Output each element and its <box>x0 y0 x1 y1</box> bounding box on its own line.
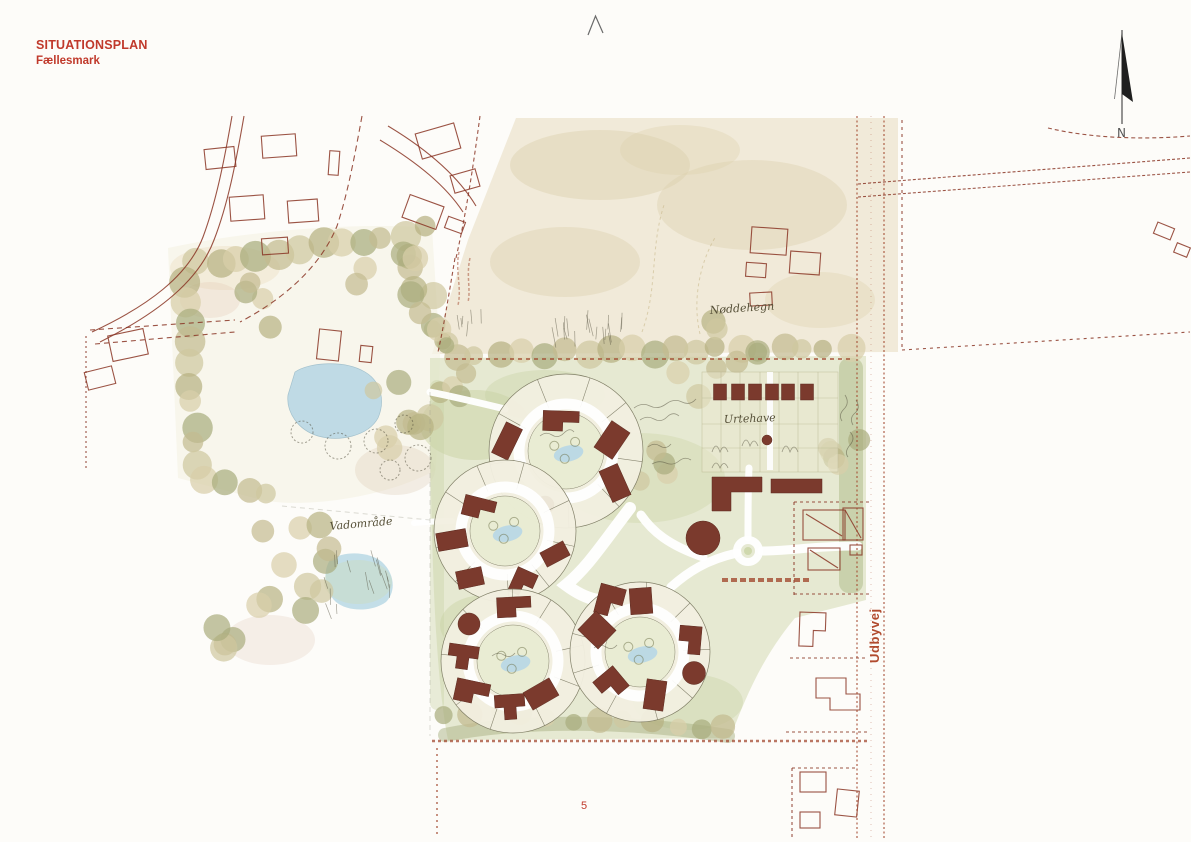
page-number: 5 <box>573 800 595 812</box>
tree <box>666 361 689 384</box>
drawing-sheet: SITUATIONSPLAN Fællesmark <box>0 0 1191 842</box>
field-north <box>432 118 898 354</box>
tree <box>565 714 582 731</box>
field-boundary <box>902 332 1190 350</box>
tree <box>646 441 666 461</box>
tree <box>271 552 297 578</box>
garden-shed <box>732 384 745 400</box>
tree <box>259 316 282 339</box>
tree <box>435 706 453 724</box>
roundabout-island <box>744 547 752 555</box>
tree <box>256 484 276 504</box>
tree <box>684 340 709 365</box>
tree <box>848 429 870 451</box>
existing-building <box>415 123 461 159</box>
tree <box>179 390 201 412</box>
tree <box>317 536 342 561</box>
tree <box>814 340 832 358</box>
tree <box>246 592 272 618</box>
field-texture <box>765 272 875 328</box>
tree <box>203 614 230 641</box>
common-building-bar <box>771 479 822 493</box>
context-road <box>858 158 1190 184</box>
grass-stroke <box>326 603 332 618</box>
tree <box>838 334 866 362</box>
tree <box>292 597 319 624</box>
context-bottomright-buildings <box>800 772 859 828</box>
tree <box>365 382 383 400</box>
north-arrow-edge <box>1115 33 1123 99</box>
tree <box>369 227 391 249</box>
north-arrow: N <box>1115 30 1134 140</box>
tree <box>692 719 712 739</box>
fold-mark-icon <box>588 16 603 35</box>
tree <box>706 318 727 339</box>
tree <box>662 335 688 361</box>
tree <box>212 469 238 495</box>
existing-building <box>1153 222 1174 240</box>
tree <box>745 340 769 364</box>
garden-well <box>762 435 772 445</box>
tree <box>670 719 687 736</box>
existing-building <box>816 678 860 710</box>
tree <box>438 337 454 353</box>
site-plan-svg: Nøddehegn Urtehave Vadområde Udbyvej N <box>0 0 1191 842</box>
label-vadomraade: Vadområde <box>329 515 393 533</box>
housing-cluster-3 <box>441 589 585 733</box>
east-hedge <box>839 358 863 593</box>
tree <box>726 351 748 373</box>
tree <box>377 435 403 461</box>
existing-building <box>444 216 465 233</box>
tree <box>464 346 483 365</box>
garden-shed <box>749 384 762 400</box>
tree <box>251 520 274 543</box>
existing-building <box>800 812 820 828</box>
context-road <box>388 126 476 206</box>
existing-building <box>261 134 296 158</box>
grass-stroke <box>336 604 337 614</box>
context-road <box>858 172 1190 197</box>
label-urtehave: Urtehave <box>724 411 777 426</box>
housing-cluster-2 <box>434 460 576 602</box>
field-texture <box>490 227 640 297</box>
tree <box>711 714 736 739</box>
garden-shed <box>801 384 814 400</box>
existing-building <box>108 329 149 362</box>
house <box>643 679 667 711</box>
common-building-round <box>686 521 720 555</box>
field-texture <box>620 125 740 175</box>
park-pond <box>288 364 382 439</box>
housing-cluster-4 <box>570 582 710 722</box>
garden-shed <box>766 384 779 400</box>
existing-building <box>204 146 236 169</box>
existing-building <box>328 151 340 176</box>
garden-shed <box>782 384 795 400</box>
existing-building <box>835 789 860 817</box>
tree <box>183 432 204 453</box>
tree <box>792 339 812 359</box>
tree <box>240 272 261 293</box>
tree <box>403 246 429 272</box>
tree <box>345 273 368 296</box>
existing-building <box>799 612 826 647</box>
tree <box>553 337 577 361</box>
tree <box>705 337 725 357</box>
tree <box>175 349 203 377</box>
label-udbyvej: Udbyvej <box>867 608 882 663</box>
north-label: N <box>1117 126 1126 140</box>
house <box>458 613 480 635</box>
existing-building <box>84 366 116 390</box>
house <box>629 587 653 614</box>
tree <box>409 302 431 324</box>
existing-building <box>287 199 318 223</box>
tree <box>456 363 476 383</box>
tree <box>386 370 411 395</box>
north-arrow-head <box>1122 33 1133 102</box>
house <box>683 662 706 685</box>
existing-building <box>229 195 265 221</box>
garden-shed <box>714 384 727 400</box>
existing-building <box>800 772 826 792</box>
existing-building <box>1174 243 1191 258</box>
tree <box>407 414 434 441</box>
